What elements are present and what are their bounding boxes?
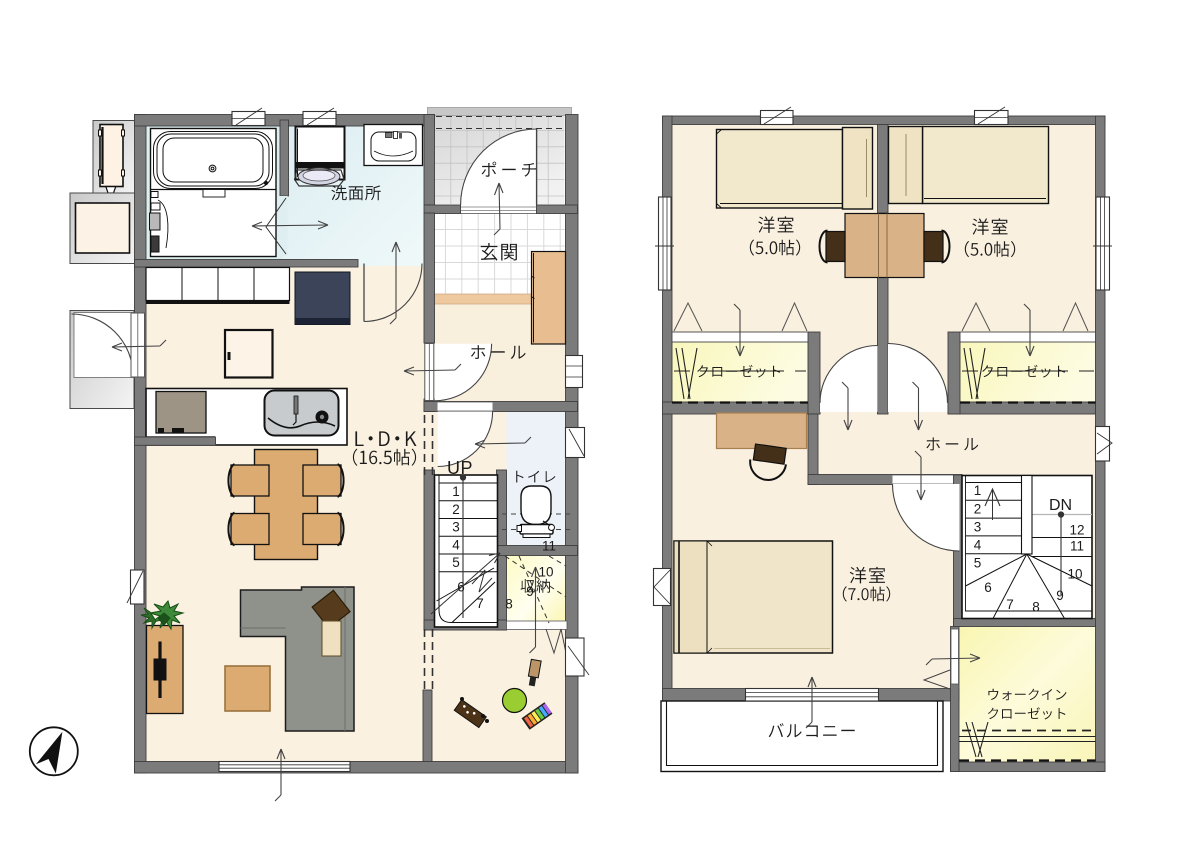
svg-text:1: 1 bbox=[974, 483, 982, 498]
svg-text:6: 6 bbox=[457, 580, 465, 595]
svg-text:3: 3 bbox=[974, 520, 982, 535]
svg-text:DN: DN bbox=[1049, 497, 1072, 514]
svg-text:6: 6 bbox=[984, 580, 992, 595]
svg-text:8: 8 bbox=[1032, 600, 1040, 615]
svg-text:7: 7 bbox=[1006, 597, 1014, 612]
svg-text:8: 8 bbox=[505, 597, 513, 612]
svg-text:4: 4 bbox=[974, 538, 982, 553]
svg-text:4: 4 bbox=[452, 538, 460, 553]
svg-text:9: 9 bbox=[1056, 588, 1064, 603]
svg-text:2: 2 bbox=[452, 502, 460, 517]
svg-text:5: 5 bbox=[974, 556, 982, 571]
svg-text:9: 9 bbox=[526, 584, 534, 599]
svg-text:10: 10 bbox=[538, 565, 553, 580]
svg-text:7: 7 bbox=[476, 596, 484, 611]
svg-text:2: 2 bbox=[974, 502, 982, 517]
svg-text:12: 12 bbox=[1069, 523, 1084, 538]
svg-text:11: 11 bbox=[1070, 539, 1084, 554]
svg-text:1: 1 bbox=[452, 484, 460, 499]
svg-text:UP: UP bbox=[447, 458, 473, 478]
svg-text:5: 5 bbox=[452, 555, 460, 570]
svg-text:11: 11 bbox=[542, 539, 556, 554]
svg-text:3: 3 bbox=[452, 520, 460, 535]
svg-text:10: 10 bbox=[1067, 567, 1082, 582]
